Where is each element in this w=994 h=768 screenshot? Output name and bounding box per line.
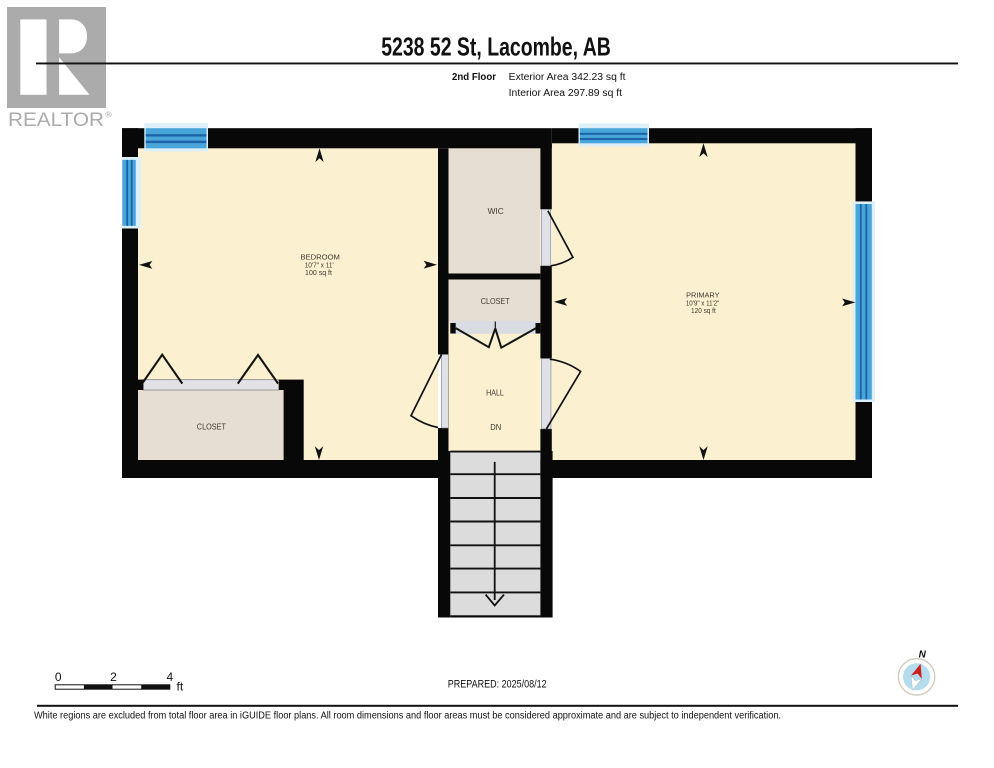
- svg-text:HALL: HALL: [486, 389, 504, 398]
- svg-text:ft: ft: [177, 679, 184, 693]
- svg-text:2nd Floor: 2nd Floor: [452, 72, 496, 83]
- svg-text:0: 0: [55, 670, 62, 684]
- svg-text:100 sq ft: 100 sq ft: [305, 268, 332, 277]
- svg-text:PREPARED: 2025/08/12: PREPARED: 2025/08/12: [448, 679, 547, 691]
- svg-text:4: 4: [166, 670, 173, 684]
- svg-text:White regions are excluded fro: White regions are excluded from total fl…: [34, 710, 781, 721]
- svg-text:Interior Area 297.89 sq ft: Interior Area 297.89 sq ft: [509, 88, 623, 99]
- svg-text:Exterior Area 342.23 sq ft: Exterior Area 342.23 sq ft: [509, 72, 626, 83]
- svg-text:5238 52 St, Lacombe, AB: 5238 52 St, Lacombe, AB: [381, 34, 611, 62]
- svg-text:DN: DN: [490, 423, 501, 432]
- svg-text:N: N: [919, 650, 927, 661]
- svg-text:WIC: WIC: [488, 207, 504, 216]
- svg-text:120 sq ft: 120 sq ft: [691, 306, 716, 315]
- svg-text:CLOSET: CLOSET: [481, 297, 510, 306]
- svg-text:CLOSET: CLOSET: [197, 422, 226, 431]
- svg-text:2: 2: [110, 670, 117, 684]
- svg-text:REALTOR: REALTOR: [8, 109, 104, 131]
- svg-text:®: ®: [105, 109, 112, 119]
